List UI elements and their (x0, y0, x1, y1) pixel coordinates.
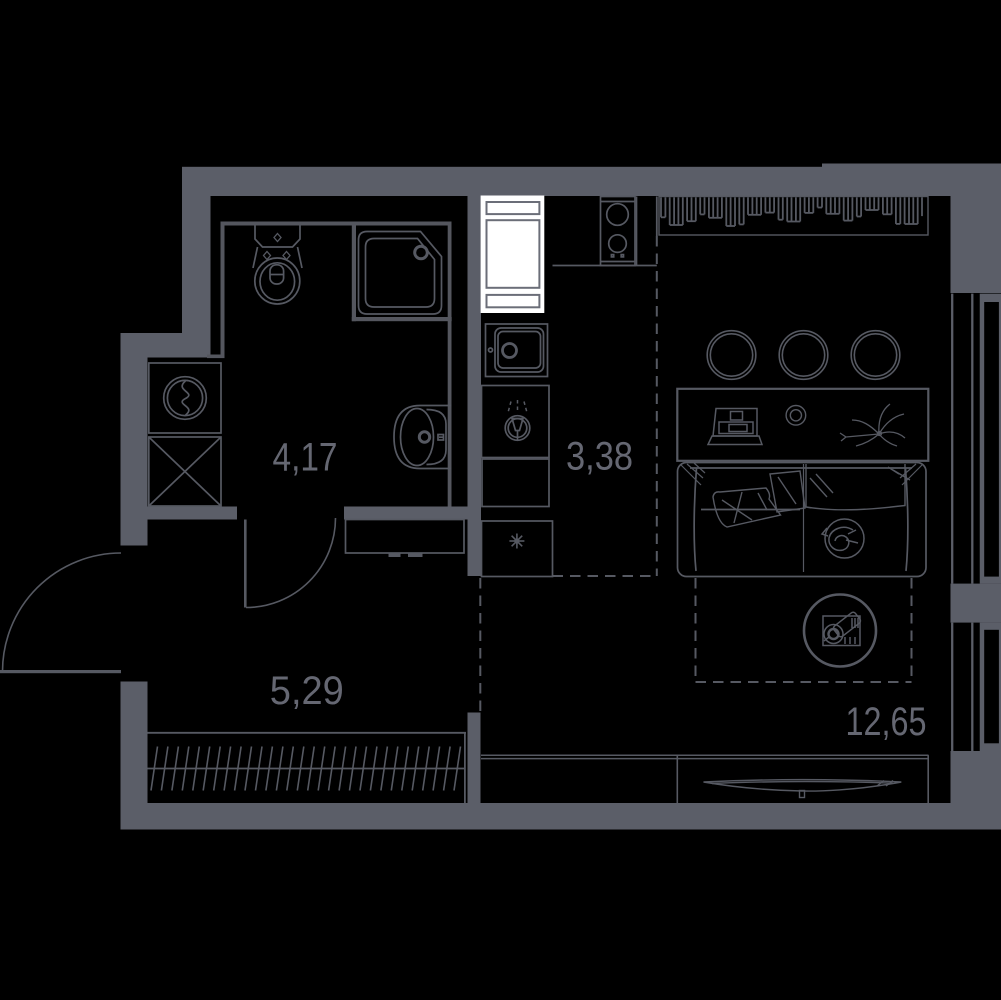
svg-text:3,38: 3,38 (566, 434, 633, 478)
svg-text:4,17: 4,17 (273, 436, 338, 480)
svg-text:12,65: 12,65 (846, 700, 927, 744)
svg-text:5,29: 5,29 (270, 669, 344, 713)
